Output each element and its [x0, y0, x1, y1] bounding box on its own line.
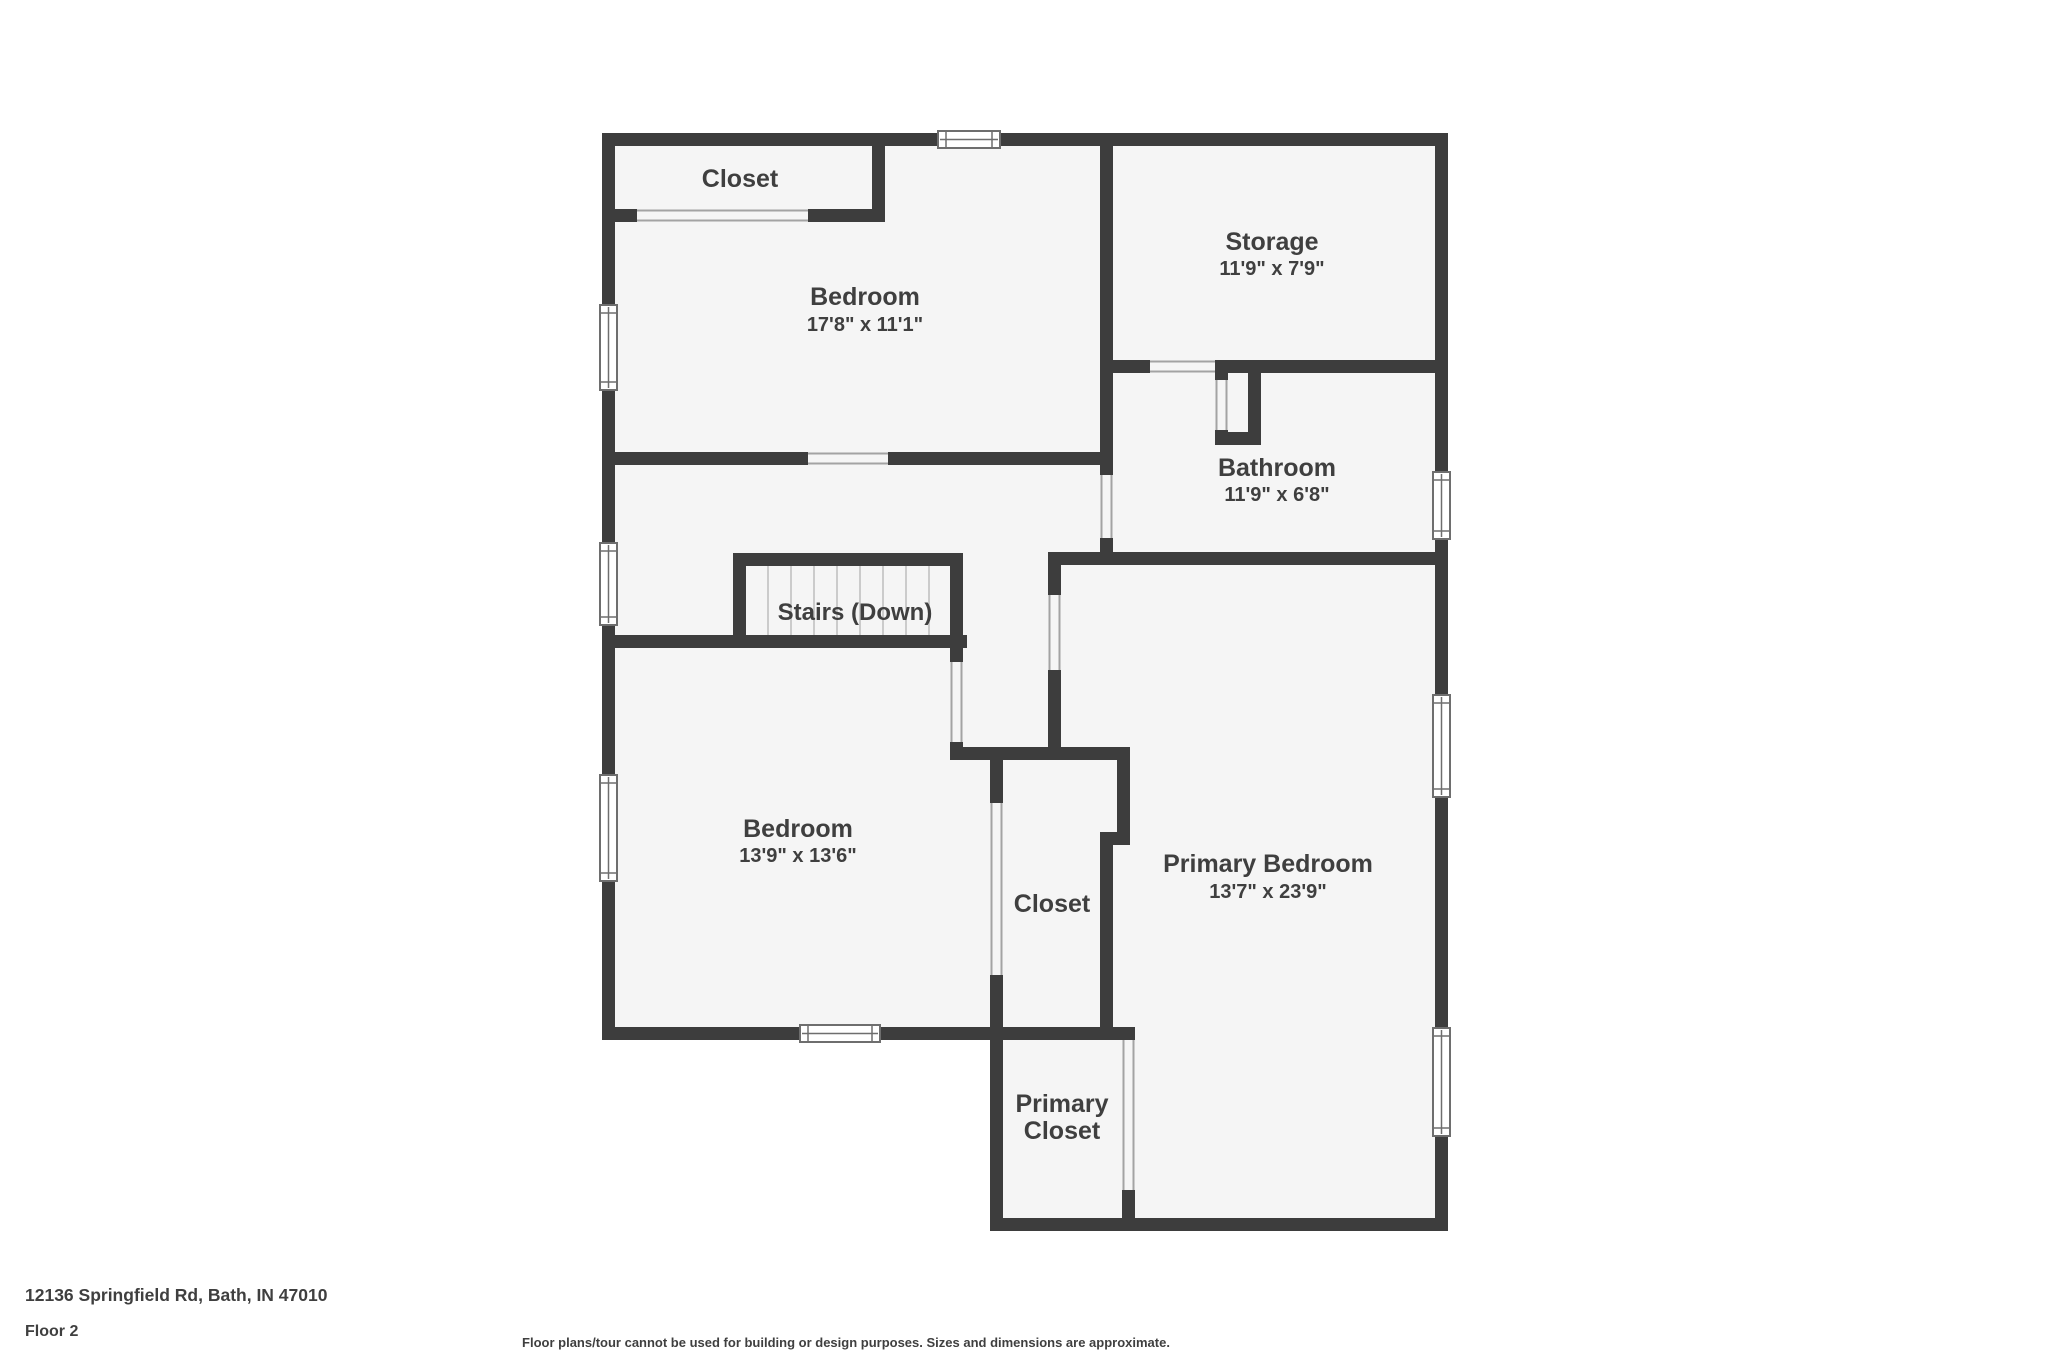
- wall-chase-right: [1248, 373, 1261, 445]
- footer-disclaimer: Floor plans/tour cannot be used for buil…: [522, 1335, 1170, 1350]
- room-dims-primary-bedroom: 13'7" x 23'9": [1209, 881, 1326, 903]
- room-label-bedroom-left: Bedroom: [743, 815, 853, 843]
- room-dims-bedroom-top: 17'8" x 11'1": [807, 314, 923, 336]
- room-dims-storage: 11'9" x 7'9": [1219, 258, 1324, 280]
- window-bedroom-top-north: [938, 131, 1000, 148]
- room-label-bedroom-top: Bedroom: [810, 283, 920, 311]
- window-bathroom-east: [1433, 472, 1450, 539]
- room-label-bathroom: Bathroom: [1218, 454, 1336, 482]
- wall-closet-middle-top: [955, 747, 1130, 760]
- room-dims-bedroom-left: 13'9" x 13'6": [739, 845, 856, 867]
- wall-primary-closet-right: [1122, 1190, 1135, 1231]
- wall-storage-bottom-a: [1113, 360, 1150, 373]
- floor-plan-page: Closet Bedroom 17'8" x 11'1" Storage 11'…: [0, 0, 2048, 1365]
- wall-hall-bottom: [615, 635, 967, 648]
- window-primary-bedroom-east-lower: [1433, 1028, 1450, 1136]
- window-bedroom-left-west: [600, 775, 617, 881]
- wall-closet-middle-left-a: [990, 755, 1003, 803]
- wall-bedroom-top-bottom-b: [888, 452, 1113, 465]
- wall-bedroom-left-door-a: [950, 553, 963, 662]
- wall-bedroom-top-bottom-a: [615, 452, 808, 465]
- wall-stairs-left: [733, 553, 746, 648]
- wall-chase-left-a: [1215, 373, 1228, 380]
- floor-plan-drawing: Closet Bedroom 17'8" x 11'1" Storage 11'…: [0, 0, 2048, 1365]
- wall-jog-bottom: [1100, 832, 1130, 845]
- wall-exterior-top: [602, 133, 1448, 146]
- footer: 12136 Springfield Rd, Bath, IN 47010 Flo…: [25, 1285, 1170, 1350]
- window-hall-west: [600, 543, 617, 625]
- room-label-primary-closet-line2: Closet: [1024, 1117, 1101, 1145]
- window-bedroom-left-south: [800, 1025, 880, 1042]
- wall-center-divider-a: [1100, 146, 1113, 475]
- wall-closet-middle-right: [1100, 845, 1113, 1040]
- room-label-primary-bedroom: Primary Bedroom: [1163, 850, 1373, 878]
- wall-closet-top-right: [872, 146, 885, 222]
- room-label-closet-middle: Closet: [1014, 890, 1091, 918]
- wall-stairs-top: [733, 553, 963, 566]
- room-label-stairs: Stairs (Down): [778, 599, 933, 626]
- room-label-primary-closet-line1: Primary: [1015, 1090, 1108, 1118]
- window-primary-bedroom-east-upper: [1433, 695, 1450, 797]
- wall-primary-bedroom-top: [1048, 552, 1448, 565]
- floor-area: [602, 133, 1448, 1231]
- room-label-closet-top: Closet: [702, 165, 779, 193]
- window-bedroom-top-west: [600, 305, 617, 390]
- wall-exterior-bottom-right: [990, 1218, 1448, 1231]
- room-label-storage: Storage: [1225, 228, 1318, 256]
- wall-bedroom-left-door-b: [950, 742, 963, 760]
- wall-closet-middle-left-b: [990, 975, 1003, 1231]
- footer-floor: Floor 2: [25, 1323, 78, 1340]
- wall-storage-bottom-b: [1215, 360, 1435, 373]
- wall-primary-door-a: [1048, 565, 1061, 595]
- footer-address: 12136 Springfield Rd, Bath, IN 47010: [25, 1285, 328, 1305]
- wall-closet-top-bottom-a: [615, 209, 637, 222]
- wall-primary-door-b: [1048, 670, 1061, 760]
- room-dims-bathroom: 11'9" x 6'8": [1224, 484, 1329, 506]
